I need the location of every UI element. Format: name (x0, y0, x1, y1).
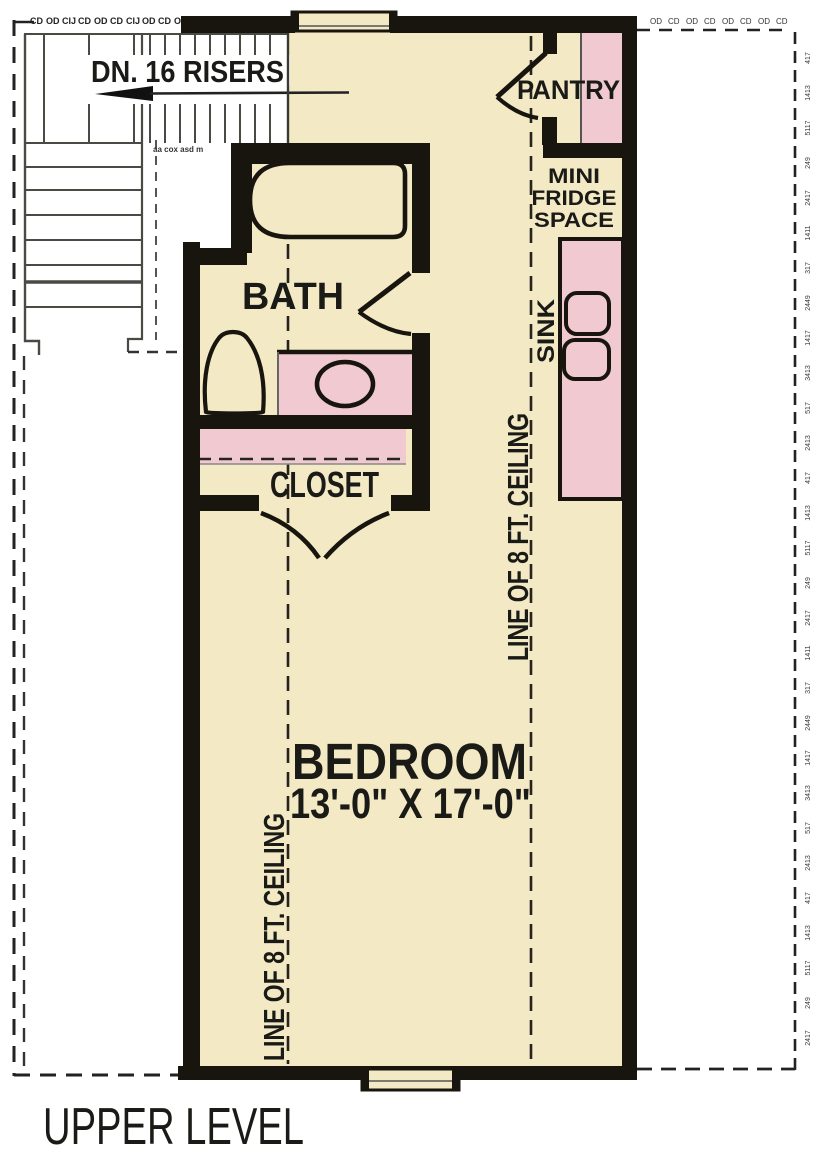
svg-text:CD: CD (110, 16, 123, 26)
svg-text:SINK: SINK (533, 298, 560, 363)
svg-text:CD: CD (158, 16, 171, 26)
svg-text:LINE OF 8 FT. CEILING: LINE OF 8 FT. CEILING (503, 413, 535, 661)
svg-text:1411: 1411 (805, 645, 812, 660)
svg-text:OD: OD (650, 17, 662, 26)
svg-text:CD: CD (776, 17, 788, 26)
svg-text:FRIDGE: FRIDGE (532, 187, 617, 210)
svg-text:OD: OD (46, 16, 60, 26)
svg-text:1413: 1413 (805, 85, 812, 101)
svg-text:OD: OD (722, 17, 734, 26)
svg-text:317: 317 (805, 262, 812, 274)
svg-text:CD: CD (78, 16, 91, 26)
svg-text:1417: 1417 (805, 330, 812, 346)
svg-text:2449: 2449 (805, 295, 812, 311)
svg-text:2417: 2417 (805, 610, 812, 626)
svg-text:2413: 2413 (805, 435, 812, 451)
svg-text:1413: 1413 (805, 505, 812, 521)
svg-text:OD: OD (686, 17, 698, 26)
svg-text:3413: 3413 (805, 365, 812, 381)
svg-text:417: 417 (805, 892, 812, 904)
svg-text:CLOSET: CLOSET (270, 464, 379, 505)
svg-text:1411: 1411 (805, 225, 812, 240)
svg-text:LINE OF 8 FT. CEILING: LINE OF 8 FT. CEILING (259, 813, 291, 1061)
svg-text:DN. 16 RISERS: DN. 16 RISERS (91, 54, 284, 89)
svg-text:5117: 5117 (805, 120, 812, 135)
svg-text:OD: OD (94, 16, 108, 26)
svg-text:317: 317 (805, 682, 812, 694)
svg-text:2449: 2449 (805, 715, 812, 731)
svg-text:249: 249 (805, 577, 812, 589)
svg-text:MINI: MINI (548, 165, 600, 188)
svg-text:417: 417 (805, 52, 812, 64)
svg-text:SPACE: SPACE (534, 209, 614, 232)
svg-text:3413: 3413 (805, 785, 812, 801)
svg-text:249: 249 (805, 997, 812, 1009)
svg-text:517: 517 (805, 402, 812, 414)
svg-text:517: 517 (805, 822, 812, 834)
svg-text:CD: CD (30, 16, 43, 26)
svg-text:OD: OD (142, 16, 156, 26)
svg-text:BATH: BATH (242, 276, 344, 318)
svg-text:OD: OD (758, 17, 770, 26)
svg-text:5117: 5117 (805, 540, 812, 555)
svg-text:CD: CD (740, 17, 752, 26)
svg-text:aa cox asd m: aa cox asd m (153, 145, 203, 154)
svg-text:5117: 5117 (805, 960, 812, 975)
svg-text:2417: 2417 (805, 1030, 812, 1046)
svg-text:CD: CD (704, 17, 716, 26)
svg-text:CD: CD (668, 17, 680, 26)
svg-text:417: 417 (805, 472, 812, 484)
svg-text:2413: 2413 (805, 855, 812, 871)
svg-text:13'-0" X 17'-0": 13'-0" X 17'-0" (290, 780, 531, 828)
svg-text:1417: 1417 (805, 750, 812, 766)
svg-text:UPPER LEVEL: UPPER LEVEL (43, 1098, 304, 1156)
svg-text:PANTRY: PANTRY (517, 75, 620, 105)
svg-text:1413: 1413 (805, 925, 812, 941)
svg-text:249: 249 (805, 157, 812, 169)
svg-text:CIJ: CIJ (126, 16, 140, 26)
svg-text:2417: 2417 (805, 190, 812, 206)
svg-text:CIJ: CIJ (62, 16, 76, 26)
